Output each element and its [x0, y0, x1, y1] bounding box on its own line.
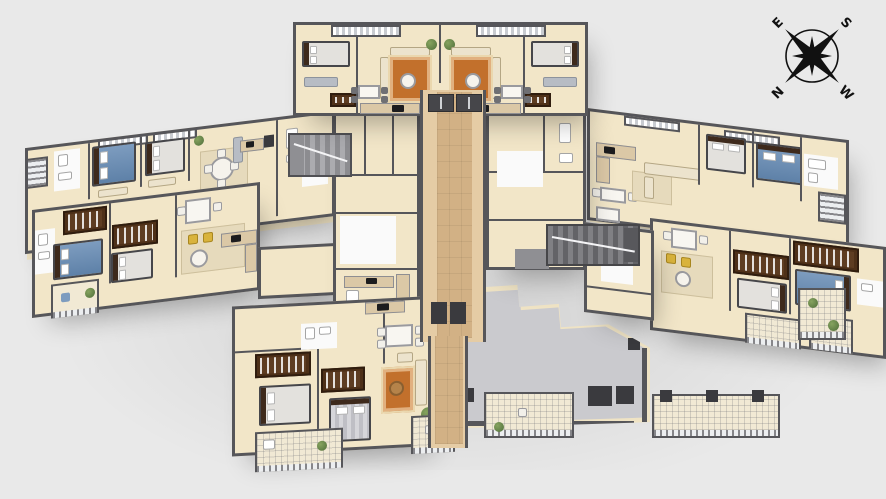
partition-wall	[188, 131, 190, 181]
partition-wall	[364, 116, 366, 174]
fridge	[264, 134, 274, 147]
pillow	[100, 167, 108, 180]
partition-wall	[587, 285, 651, 295]
armchair	[188, 234, 198, 245]
lobby	[497, 151, 543, 187]
lounge-chair	[518, 408, 527, 417]
balcony	[798, 288, 846, 340]
pillow	[771, 300, 779, 311]
column	[616, 386, 634, 404]
partition-wall	[698, 125, 700, 185]
sink	[559, 153, 573, 163]
pillow	[336, 406, 348, 415]
staircase-left	[288, 133, 352, 177]
balcony	[51, 279, 99, 319]
pillow	[310, 56, 317, 64]
chair	[381, 87, 388, 94]
headboard	[780, 285, 785, 312]
kitchen-counter	[360, 103, 420, 114]
compass-label-east: E	[770, 15, 787, 32]
partition-wall	[789, 238, 791, 314]
balcony	[26, 156, 48, 189]
plant	[426, 39, 437, 50]
elevator	[428, 94, 454, 112]
cooktop	[604, 146, 615, 154]
stair-landing	[515, 249, 549, 269]
armchair	[397, 352, 413, 363]
headboard	[331, 398, 369, 405]
double-bed	[302, 41, 350, 67]
headboard	[261, 388, 266, 424]
compass-label-west: W	[835, 83, 856, 104]
central-corridor-lower	[428, 336, 468, 448]
partition-wall	[140, 137, 142, 187]
desk	[263, 439, 275, 450]
headboard	[147, 143, 152, 174]
kitchen-counter	[596, 156, 610, 184]
sink	[861, 283, 873, 292]
chair	[494, 87, 501, 94]
chair	[377, 339, 386, 348]
railing	[654, 430, 778, 436]
toilet	[808, 172, 818, 183]
pillow	[728, 144, 740, 152]
railing	[257, 462, 341, 472]
double-bed	[111, 248, 153, 283]
column	[706, 390, 718, 402]
stair-landing	[624, 228, 638, 262]
partition-wall	[109, 203, 111, 283]
partition-wall	[88, 143, 90, 199]
chair	[663, 231, 672, 241]
pillow	[564, 56, 571, 64]
lounge-chair	[61, 292, 70, 302]
partition-wall	[543, 113, 545, 171]
partition-wall	[392, 116, 394, 174]
sofa	[543, 77, 577, 87]
pillow	[763, 152, 776, 162]
bedroom-bench	[98, 186, 128, 198]
pillow	[353, 406, 365, 415]
headboard	[304, 43, 309, 65]
chair	[699, 235, 708, 245]
double-bed	[737, 278, 787, 314]
sink	[58, 171, 72, 181]
pillow	[119, 256, 126, 267]
shaft-block	[431, 302, 447, 324]
partition-wall	[489, 219, 583, 221]
wardrobe	[63, 206, 107, 235]
double-bed	[53, 238, 103, 280]
pillow	[267, 409, 275, 421]
pillow	[61, 263, 69, 275]
compass-label-south: S	[837, 15, 854, 32]
chair	[217, 148, 226, 158]
dining-table	[596, 206, 620, 223]
balcony	[818, 191, 846, 224]
sofa	[304, 77, 338, 87]
double-bed	[92, 141, 136, 186]
balcony	[652, 394, 780, 438]
pillow	[119, 269, 126, 280]
double-bed	[756, 142, 802, 186]
elevator	[456, 94, 482, 112]
chair	[592, 188, 601, 198]
balcony	[331, 25, 401, 37]
pillow	[61, 248, 69, 260]
toilet	[305, 327, 315, 340]
dining-table	[385, 324, 413, 347]
sink	[38, 251, 50, 260]
dining-table	[501, 85, 523, 99]
partition-wall	[336, 212, 417, 214]
partition-wall	[336, 268, 417, 270]
bottom-wing	[232, 296, 432, 456]
toilet	[38, 233, 48, 246]
double-bed	[531, 41, 579, 67]
column	[588, 386, 612, 406]
wardrobe	[112, 220, 158, 250]
hallway	[258, 243, 336, 299]
plant	[317, 441, 327, 452]
plant	[85, 287, 95, 298]
bathtub	[559, 123, 571, 143]
plant	[494, 422, 504, 432]
balcony	[624, 116, 680, 133]
partition-wall	[276, 120, 278, 216]
pillow	[267, 392, 275, 404]
headboard	[113, 254, 118, 281]
lobby	[340, 216, 396, 264]
chair	[524, 87, 531, 94]
chair	[351, 96, 358, 103]
dining-table	[600, 187, 626, 204]
cooktop	[377, 303, 389, 311]
pillow	[100, 151, 108, 164]
chair	[177, 206, 186, 216]
cooktop	[366, 278, 377, 284]
sofa	[644, 176, 654, 199]
column	[660, 390, 672, 402]
pillow	[153, 145, 160, 157]
chair	[494, 96, 501, 103]
plant	[194, 135, 204, 146]
coffee-table	[400, 73, 416, 89]
shaft-block	[450, 302, 466, 324]
terrace-wall-cap	[642, 348, 647, 422]
double-bed	[145, 137, 185, 176]
pillow	[564, 46, 571, 54]
headboard	[55, 246, 60, 279]
compass-rose: E S N W	[764, 4, 860, 104]
headboard	[572, 43, 577, 65]
partition-wall	[752, 131, 754, 187]
staircase-right	[546, 224, 640, 266]
stair-railing	[552, 236, 635, 253]
balcony	[476, 25, 546, 37]
double-bed	[706, 134, 746, 175]
balcony	[484, 392, 574, 438]
wardrobe	[793, 241, 859, 273]
cooktop	[392, 105, 404, 112]
wardrobe	[255, 351, 311, 378]
bathtub	[808, 158, 826, 170]
chair	[351, 87, 358, 94]
chair	[213, 202, 222, 212]
pillow	[782, 154, 795, 164]
armchair	[203, 232, 213, 243]
cooktop	[231, 234, 241, 242]
partition-wall	[439, 25, 441, 83]
double-bed	[259, 383, 311, 426]
cooktop	[246, 141, 254, 148]
headboard	[94, 148, 99, 185]
armchair	[666, 253, 676, 264]
chair	[524, 96, 531, 103]
bedroom-bench	[148, 177, 176, 188]
balcony	[255, 428, 343, 473]
stair-landing	[290, 135, 304, 175]
plant	[808, 298, 818, 308]
column	[752, 390, 764, 402]
central-corridor	[420, 90, 486, 342]
chair	[377, 327, 386, 336]
kitchen-counter	[245, 243, 257, 272]
toilet	[58, 154, 68, 167]
armchair	[681, 257, 691, 268]
railing	[800, 332, 844, 338]
corridor-runner	[435, 336, 463, 444]
sofa	[415, 359, 427, 406]
pillow	[771, 287, 779, 298]
dining-table	[358, 85, 380, 99]
wardrobe	[733, 249, 789, 280]
partition-wall	[729, 231, 731, 311]
living-rug	[181, 223, 245, 275]
coffee-table	[465, 73, 481, 89]
wardrobe	[321, 367, 365, 393]
compass-label-north: N	[769, 84, 787, 102]
pillow	[712, 142, 724, 150]
partition-wall	[800, 137, 802, 201]
sink	[319, 326, 331, 335]
pillow	[310, 46, 317, 54]
chair	[204, 164, 213, 174]
dining-table	[185, 197, 211, 224]
pillow	[153, 159, 160, 171]
plant	[828, 320, 839, 331]
dining-table	[671, 228, 697, 251]
floorplan-render: E S N W	[0, 0, 886, 499]
chair	[381, 96, 388, 103]
